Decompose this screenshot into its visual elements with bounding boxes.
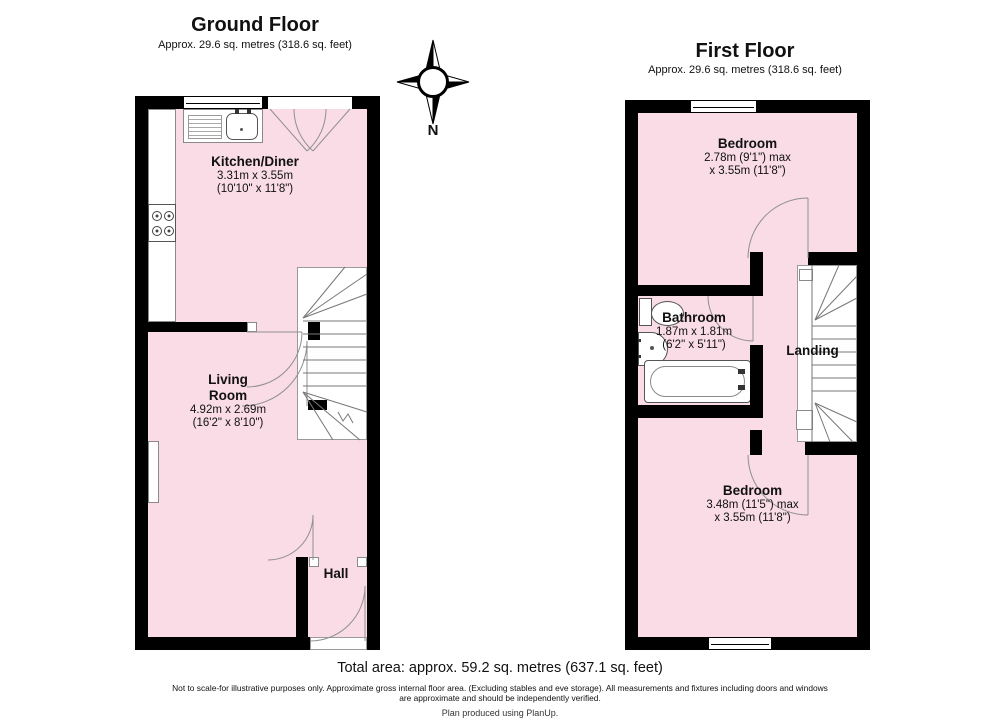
room-dims: 1.87m x 1.81m	[633, 326, 755, 340]
room-dims: 2.78m (9'1") max	[655, 152, 840, 166]
kitchen-label: Kitchen/Diner 3.31m x 3.55m (10'10" x 11…	[160, 154, 350, 197]
room-dims: x 3.55m (11'8")	[655, 165, 840, 179]
room-dims: 3.31m x 3.55m	[160, 170, 350, 184]
ground-floor-plan: Kitchen/Diner 3.31m x 3.55m (10'10" x 11…	[135, 96, 380, 650]
room-name: Room	[158, 388, 298, 404]
first-floor-subtitle: Approx. 29.6 sq. metres (318.6 sq. feet)	[605, 64, 885, 76]
plan-credit: Plan produced using PlanUp.	[0, 708, 1000, 718]
room-name: Bedroom	[660, 483, 845, 499]
total-area-text: Total area: approx. 59.2 sq. metres (637…	[0, 660, 1000, 676]
room-dims: (10'10" x 11'8")	[160, 183, 350, 197]
room-name: Landing	[765, 343, 860, 359]
room-dims: x 3.55m (11'8")	[660, 512, 845, 526]
room-dims: 3.48m (11'5") max	[660, 499, 845, 513]
room-name: Bathroom	[633, 310, 755, 326]
disclaimer-line2: are approximate and should be independen…	[0, 693, 1000, 703]
disclaimer-line1: Not to scale-for illustrative purposes o…	[0, 683, 1000, 693]
floorplan-page: Ground Floor Approx. 29.6 sq. metres (31…	[0, 0, 1000, 727]
first-floor-title: First Floor	[605, 40, 885, 63]
room-name: Kitchen/Diner	[160, 154, 350, 170]
room-name: Living	[158, 372, 298, 388]
room-name: Bedroom	[655, 136, 840, 152]
bedroom-top-label: Bedroom 2.78m (9'1") max x 3.55m (11'8")	[655, 136, 840, 179]
room-dims: (16'2" x 8'10")	[158, 417, 298, 431]
compass-icon	[395, 36, 471, 128]
compass-rose: N	[395, 36, 471, 142]
landing-label: Landing	[765, 343, 860, 359]
first-floor-plan: Bedroom 2.78m (9'1") max x 3.55m (11'8")…	[625, 100, 870, 650]
bedroom-bottom-label: Bedroom 3.48m (11'5") max x 3.55m (11'8"…	[660, 483, 845, 526]
ground-floor-title: Ground Floor	[115, 14, 395, 37]
room-name: Hall	[308, 566, 364, 582]
room-dims: (6'2" x 5'11")	[633, 339, 755, 353]
first-floor-linework	[625, 100, 870, 650]
ground-floor-subtitle: Approx. 29.6 sq. metres (318.6 sq. feet)	[115, 39, 395, 51]
hall-label: Hall	[308, 566, 364, 582]
room-dims: 4.92m x 2.69m	[158, 404, 298, 418]
living-room-label: Living Room 4.92m x 2.69m (16'2" x 8'10"…	[158, 372, 298, 431]
bathroom-label: Bathroom 1.87m x 1.81m (6'2" x 5'11")	[633, 310, 755, 353]
compass-north-label: N	[416, 122, 450, 139]
